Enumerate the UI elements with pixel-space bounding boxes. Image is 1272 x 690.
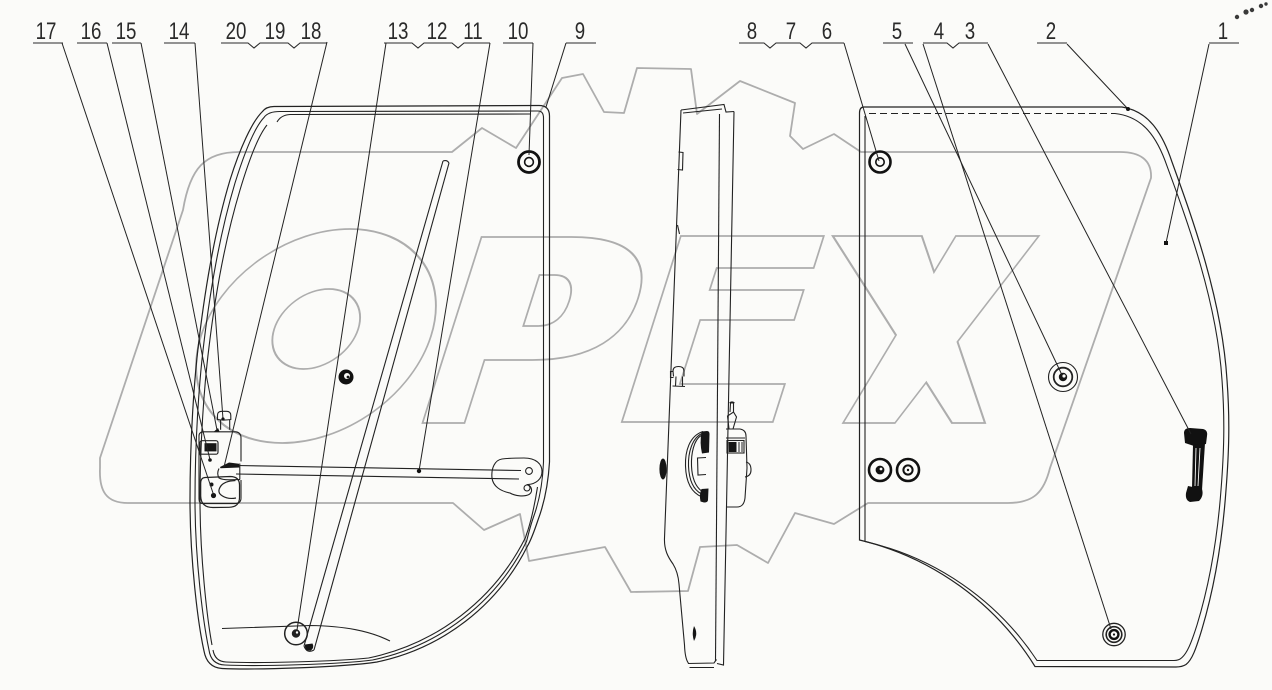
svg-text:1: 1 <box>1218 18 1228 45</box>
svg-text:8: 8 <box>747 18 757 45</box>
svg-text:13: 13 <box>388 18 409 45</box>
svg-text:5: 5 <box>892 18 902 45</box>
svg-text:11: 11 <box>463 18 482 45</box>
svg-text:2: 2 <box>1046 18 1056 45</box>
svg-text:17: 17 <box>36 18 57 45</box>
svg-text:6: 6 <box>822 18 832 45</box>
svg-text:16: 16 <box>81 18 102 45</box>
svg-text:18: 18 <box>301 18 322 45</box>
svg-text:19: 19 <box>265 18 286 45</box>
svg-text:12: 12 <box>427 18 448 45</box>
svg-text:10: 10 <box>508 18 529 45</box>
svg-text:4: 4 <box>934 18 944 45</box>
svg-text:15: 15 <box>116 18 137 45</box>
svg-text:3: 3 <box>965 18 975 45</box>
svg-text:20: 20 <box>226 18 247 45</box>
svg-text:14: 14 <box>169 18 190 45</box>
svg-text:9: 9 <box>575 18 585 45</box>
svg-text:7: 7 <box>786 18 796 45</box>
